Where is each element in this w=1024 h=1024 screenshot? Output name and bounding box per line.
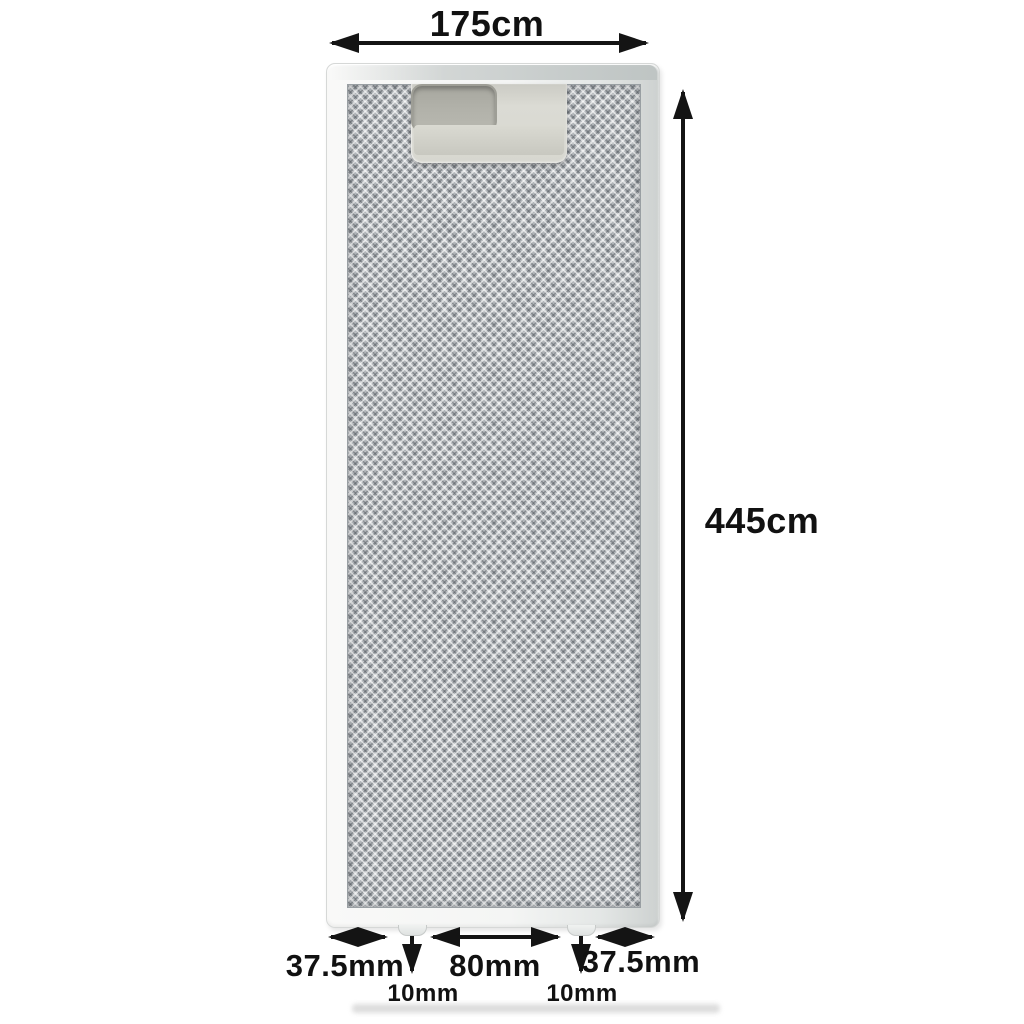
bottom-left-dimension-label: 37.5mm — [280, 950, 410, 981]
mounting-tab-right — [567, 925, 596, 936]
mounting-tab-left — [398, 925, 427, 936]
tab-right-dimension-label: 10mm — [537, 982, 627, 1006]
width-dimension-label: 175cm — [427, 6, 547, 42]
handle-grip-slot — [411, 84, 497, 132]
tab-left-dimension-label: 10mm — [378, 982, 468, 1006]
filter-mesh-panel — [347, 84, 641, 908]
product-dimension-diagram: 175cm 445cm 37.5mm 80mm 37.5mm 10mm 10mm — [0, 0, 1024, 1024]
handle-plate — [411, 84, 567, 163]
handle-grip-lip — [414, 125, 564, 155]
height-dimension-label: 445cm — [702, 503, 822, 539]
bottom-right-dimension-label: 37.5mm — [576, 946, 706, 977]
bottom-center-dimension-label: 80mm — [430, 950, 560, 981]
